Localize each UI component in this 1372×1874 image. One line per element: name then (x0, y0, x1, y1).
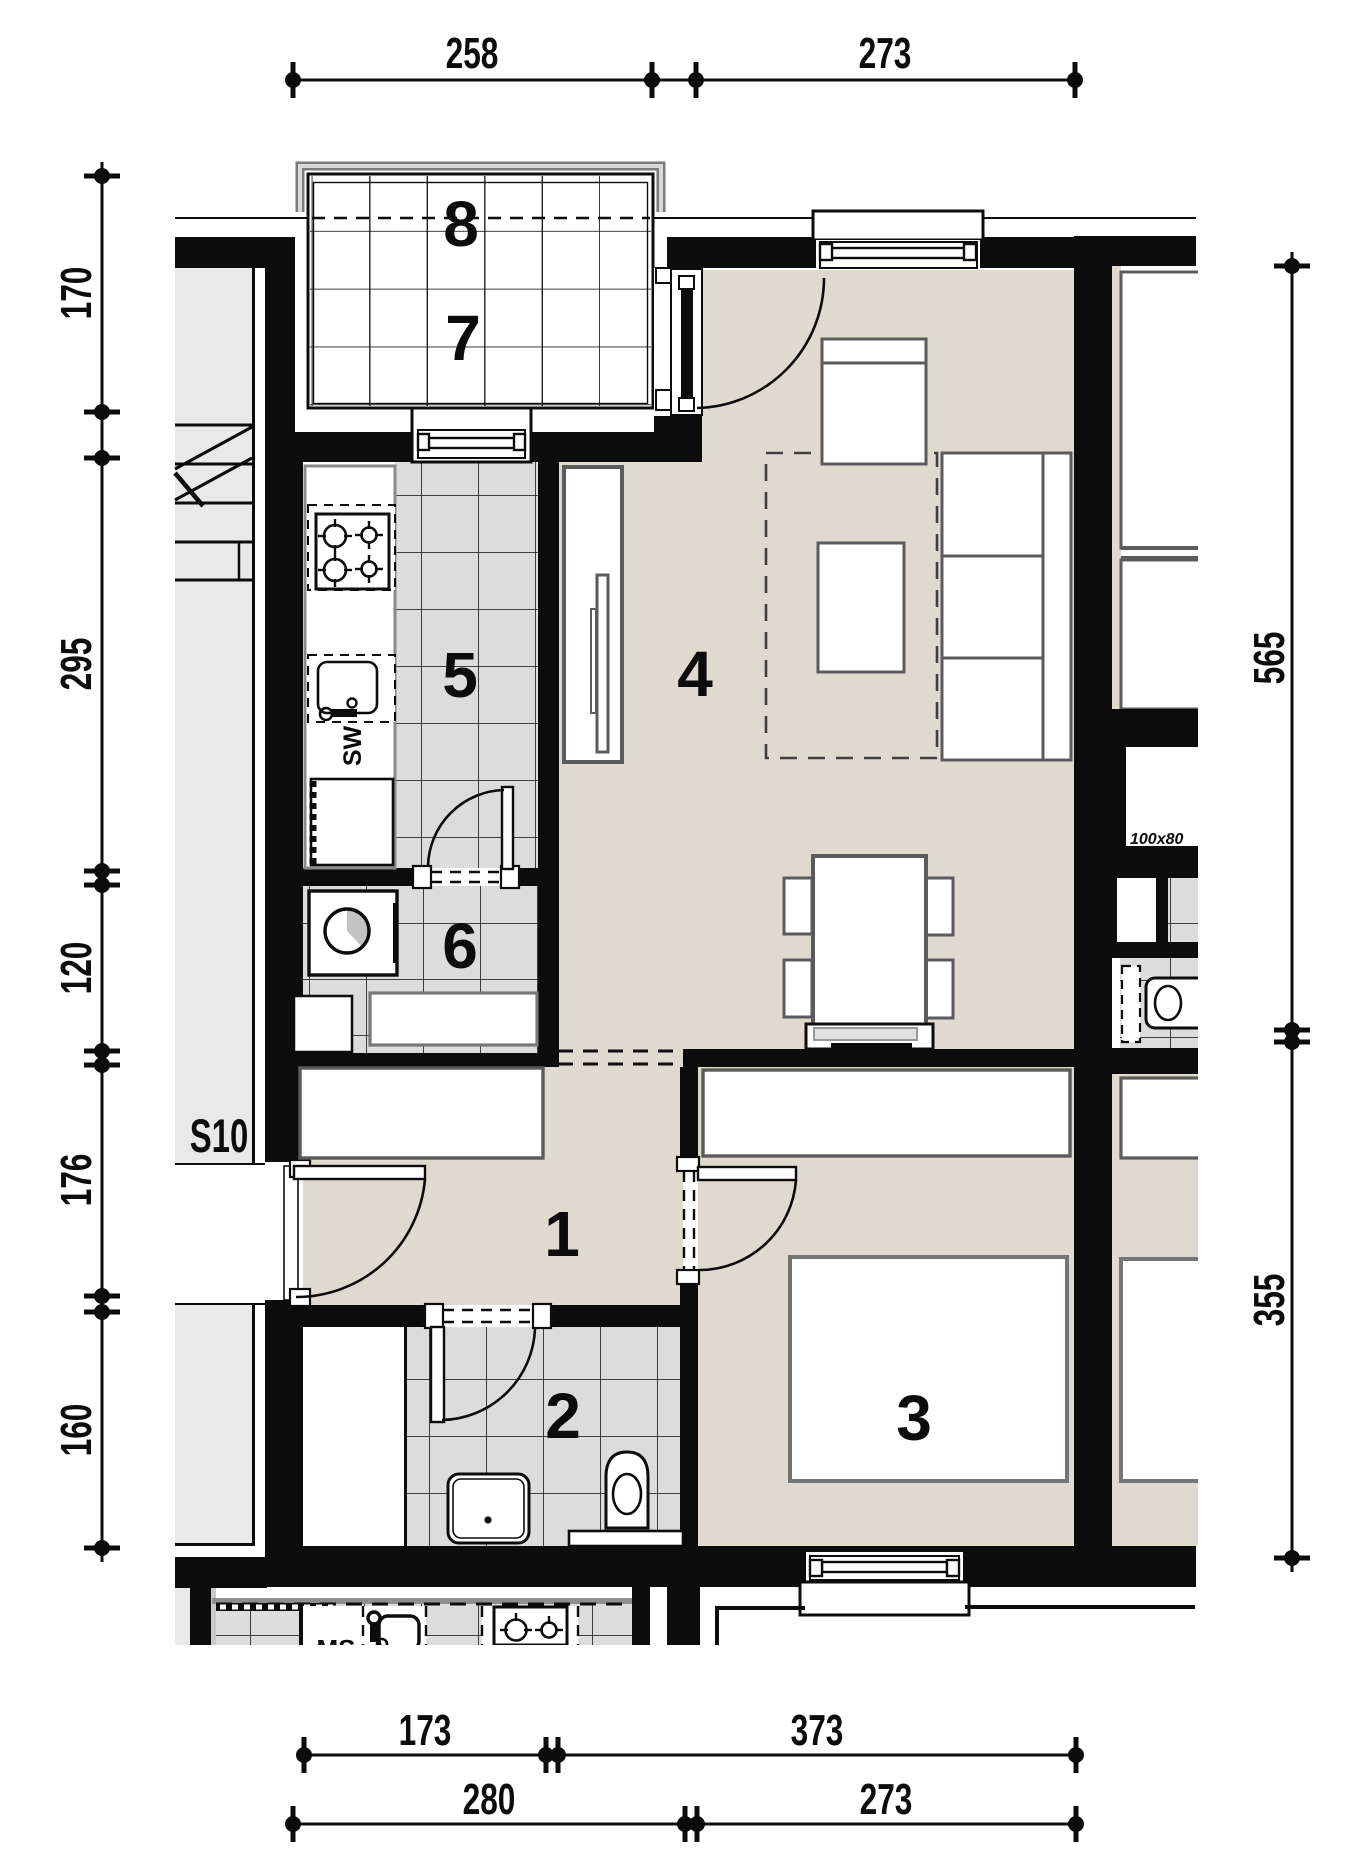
svg-text:SW: SW (339, 725, 367, 766)
svg-text:176: 176 (52, 1154, 101, 1207)
svg-text:120: 120 (52, 942, 101, 995)
svg-text:7: 7 (445, 302, 481, 374)
svg-text:S10: S10 (190, 1109, 249, 1162)
svg-text:273: 273 (860, 1775, 913, 1824)
svg-text:5: 5 (442, 639, 478, 711)
svg-text:1: 1 (544, 1198, 580, 1270)
svg-text:565: 565 (1245, 632, 1294, 685)
svg-text:3: 3 (896, 1382, 932, 1454)
svg-text:100x80: 100x80 (1130, 831, 1183, 848)
svg-text:4: 4 (677, 638, 713, 710)
svg-text:373: 373 (791, 1706, 844, 1755)
svg-text:8: 8 (443, 188, 479, 260)
svg-text:6: 6 (442, 910, 478, 982)
svg-text:173: 173 (399, 1706, 452, 1755)
svg-text:258: 258 (446, 29, 499, 78)
svg-text:355: 355 (1245, 1274, 1294, 1327)
svg-text:170: 170 (52, 267, 101, 320)
svg-text:273: 273 (859, 29, 912, 78)
svg-text:295: 295 (52, 638, 101, 691)
svg-text:280: 280 (463, 1775, 516, 1824)
svg-text:160: 160 (52, 1404, 101, 1457)
svg-text:2: 2 (545, 1380, 581, 1452)
